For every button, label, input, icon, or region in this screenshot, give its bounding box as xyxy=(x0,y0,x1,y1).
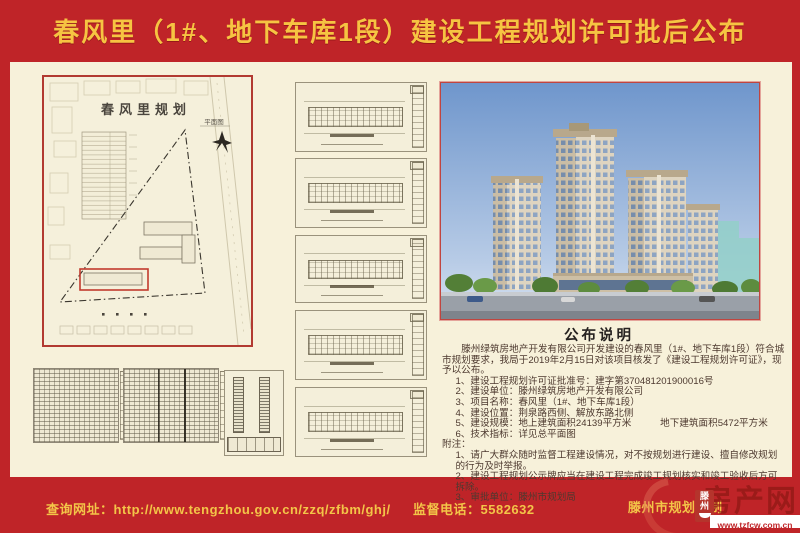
drawing-caption xyxy=(296,124,408,145)
section-bar xyxy=(259,377,270,433)
title-block-strip xyxy=(412,239,424,298)
watermark-url-bar: www.tzfcw.com.cn xyxy=(710,515,800,528)
drawing-caption xyxy=(296,352,408,373)
announcement-heading: 公布说明 xyxy=(440,324,758,345)
table-ticks xyxy=(129,135,137,195)
floor-plan-sheet-1 xyxy=(295,82,427,152)
rendering-svg xyxy=(441,83,759,319)
announcement-item: 3、项目名称：春风里（1#、地下车库1段） xyxy=(442,398,786,409)
marker-dots xyxy=(102,313,147,316)
title-block-strip xyxy=(412,314,424,375)
announcement-intro: 滕州绿筑房地产开发有限公司开发建设的春风里（1#、地下车库1段）符合城市规划要求… xyxy=(442,345,786,377)
footer-query-url: 查询网址：http://www.tengzhou.gov.cn/zzq/zfbm… xyxy=(46,499,391,518)
watermark-url: www.tzfcw.com.cn xyxy=(718,520,793,530)
elevation-drawing-1 xyxy=(33,368,119,443)
title-block xyxy=(227,437,281,452)
south-parcels xyxy=(60,326,192,334)
title-block-strip xyxy=(412,391,424,452)
announcement-item: 6、技术指标：详见总平面图 xyxy=(442,430,786,441)
title-block-strip xyxy=(412,162,424,223)
tower-1 xyxy=(491,176,543,290)
query-label: 查询网址： xyxy=(46,502,114,517)
building-rendering xyxy=(440,82,760,320)
phone-number: 5582632 xyxy=(481,502,535,517)
footer-supervision-phone: 监督电话：5582632 xyxy=(413,499,535,518)
site-plan-svg: 春风里规划 平面图 xyxy=(44,77,251,345)
title-block-strip xyxy=(412,86,424,147)
site-plan-title: 春风里规划 xyxy=(100,102,191,117)
section-drawing xyxy=(224,370,284,456)
floor-plan-sheet-4 xyxy=(295,310,427,380)
floor-plan-sheet-3 xyxy=(295,235,427,303)
poster-title: 春风里（1#、地下车库1段）建设工程规划许可批后公布 xyxy=(0,15,800,49)
section-bar xyxy=(233,377,244,433)
phone-label: 监督电话： xyxy=(413,502,481,517)
drawing-caption xyxy=(296,275,408,296)
building-footprints xyxy=(84,222,195,285)
site-plan-label: 平面图 xyxy=(204,118,224,126)
elevation-drawing-2 xyxy=(123,368,219,443)
road-lines xyxy=(210,77,251,345)
north-compass-icon xyxy=(212,131,232,153)
watermark-logo-crescent-icon xyxy=(699,513,711,518)
query-url: http://www.tengzhou.gov.cn/zzq/zfbm/ghj/ xyxy=(114,502,391,517)
drawing-caption xyxy=(296,200,408,221)
announcement-note: 1、请广大群众随时监督工程建设情况，对不按规划进行建设、擅自修改规划的行为及时举… xyxy=(442,451,786,472)
indicator-table xyxy=(82,132,126,219)
watermark-logo-text: 滕州 xyxy=(699,492,710,511)
floor-plan-sheet-2 xyxy=(295,158,427,228)
site-plan-drawing: 春风里规划 平面图 xyxy=(42,75,253,347)
tower-2 xyxy=(553,123,617,296)
drawing-caption xyxy=(296,429,408,450)
watermark-site-name: 房产网 xyxy=(702,476,798,520)
floor-plan-sheet-5 xyxy=(295,387,427,457)
announcement-poster: 春风里（1#、地下车库1段）建设工程规划许可批后公布 xyxy=(0,0,800,533)
